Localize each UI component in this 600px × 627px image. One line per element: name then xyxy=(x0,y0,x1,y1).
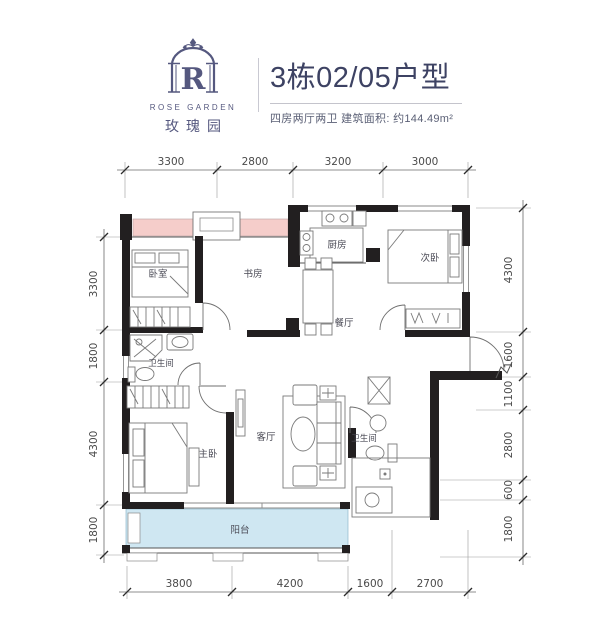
room-bathroom-lower: 卫生间 xyxy=(351,377,430,517)
kitchen-label: 厨房 xyxy=(327,239,346,251)
room-living: 客厅 xyxy=(236,385,345,488)
dim-right-0: 4300 xyxy=(503,257,515,284)
dim-left-2: 4300 xyxy=(88,431,100,458)
room-study: 书房 xyxy=(243,268,262,280)
second-bedroom-door-arc xyxy=(380,305,405,330)
logo-brand-cn: 玫瑰园 xyxy=(138,116,248,136)
bathroom-upper-label: 卫生间 xyxy=(148,358,174,368)
master-bedroom-door-arc xyxy=(199,386,226,413)
entry-door-arc xyxy=(470,337,504,371)
dim-top-1: 2800 xyxy=(242,156,269,168)
bathroom-upper-door-arc xyxy=(178,363,200,385)
page-subtitle: 四房两厅两卫 建筑面积: 约144.49m² xyxy=(270,110,480,126)
balcony-label: 阳台 xyxy=(230,524,249,536)
dim-top-0: 3300 xyxy=(158,156,185,168)
dim-bottom-1: 4200 xyxy=(277,578,304,590)
dim-bottom-2: 1600 xyxy=(357,578,384,590)
floorplan-page: R ROSE GARDEN 玫瑰园 3栋02/05户型 四房两厅两卫 建筑面积:… xyxy=(0,0,600,627)
dim-bottom-0: 3800 xyxy=(166,578,193,590)
logo: R ROSE GARDEN 玫瑰园 xyxy=(138,38,248,136)
floorplan-drawing: 3300 2800 3200 3000 3800 4200 1600 2700 xyxy=(0,140,600,627)
dim-top-3: 3000 xyxy=(412,156,439,168)
logo-brand-en: ROSE GARDEN xyxy=(138,103,248,112)
second-bedroom-label: 次卧 xyxy=(420,252,440,264)
dim-right-1: 1600 xyxy=(503,342,515,369)
study-label: 书房 xyxy=(243,268,262,280)
dim-right-3: 2800 xyxy=(503,432,515,459)
logo-letter: R xyxy=(181,62,207,97)
room-second-bedroom: 次卧 xyxy=(388,230,462,328)
living-label: 客厅 xyxy=(256,431,276,443)
room-bedroom: 卧室 xyxy=(130,250,190,327)
dimension-left: 3300 1800 4300 1800 xyxy=(88,229,124,563)
room-dining: 餐厅 xyxy=(303,258,354,335)
header-divider xyxy=(258,58,259,112)
title-block: 3栋02/05户型 四房两厅两卫 建筑面积: 约144.49m² xyxy=(270,54,480,126)
study-door-arc xyxy=(203,303,230,330)
bathroom-lower-label: 卫生间 xyxy=(351,433,377,443)
dimension-top: 3300 2800 3200 3000 xyxy=(117,156,476,198)
bay-windows xyxy=(130,212,288,240)
dim-right-5: 1800 xyxy=(503,516,515,543)
rose-garden-arch-icon: R xyxy=(161,38,225,98)
dim-bottom-3: 2700 xyxy=(417,578,444,590)
dim-left-0: 3300 xyxy=(88,271,100,298)
dim-right-4: 600 xyxy=(503,480,515,500)
title-underline xyxy=(270,103,462,104)
dim-left-3: 1800 xyxy=(88,517,100,544)
dim-left-1: 1800 xyxy=(88,343,100,370)
dim-top-2: 3200 xyxy=(325,156,352,168)
dim-right-2: 1100 xyxy=(503,381,515,408)
bedroom-label: 卧室 xyxy=(148,268,167,280)
master-bedroom-label: 主卧 xyxy=(198,448,218,460)
room-master-bedroom: 主卧 xyxy=(129,423,218,493)
page-title: 3栋02/05户型 xyxy=(270,54,480,96)
dining-label: 餐厅 xyxy=(334,317,354,329)
room-kitchen: 厨房 xyxy=(300,211,366,263)
